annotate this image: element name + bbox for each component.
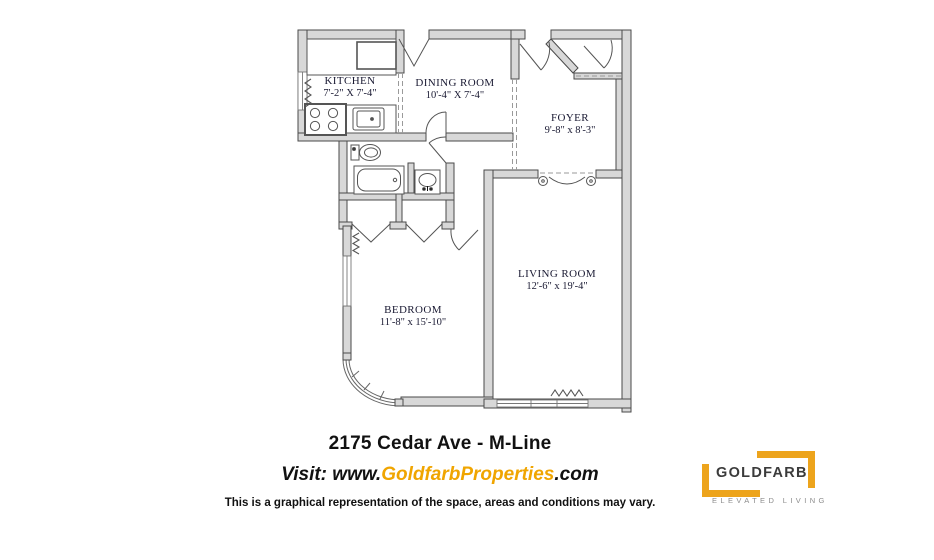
floorplan-flyer: KITCHEN 7'-2" X 7'-4" DINING ROOM 10'-4"…	[0, 0, 934, 560]
kitchen-sink-icon	[353, 108, 384, 130]
visit-brand: GoldfarbProperties	[381, 464, 554, 485]
visit-prefix: Visit: www.	[281, 464, 381, 485]
door-swing	[459, 230, 478, 250]
stove-icon	[305, 104, 346, 135]
french-door-scrolls	[539, 177, 596, 186]
goldfarb-logo: GOLDFARB ELEVATED LIVING	[695, 443, 845, 513]
curved-bay-window	[343, 359, 401, 406]
kitchen-cabinet	[357, 42, 396, 69]
french-door-scroll	[539, 177, 548, 186]
vanity-sink-icon	[415, 170, 440, 194]
door-swing	[520, 44, 541, 70]
dashed-openings	[399, 73, 623, 173]
logo-wordmark: GOLDFARB	[716, 465, 808, 481]
radiator-icon	[551, 390, 583, 396]
bathtub-icon	[354, 166, 404, 194]
disclaimer-text: This is a graphical representation of th…	[140, 497, 740, 509]
bathroom-fixtures	[351, 145, 440, 195]
logo-bracket-top	[757, 451, 815, 458]
visit-url: Visit: www.GoldfarbProperties.com	[140, 464, 740, 486]
page-title: 2175 Cedar Ave - M-Line	[140, 433, 740, 455]
logo-tagline: ELEVATED LIVING	[712, 496, 828, 505]
closet-door	[406, 224, 442, 242]
logo-bracket-top	[808, 451, 815, 488]
closet-door	[584, 46, 604, 68]
toilet-icon	[351, 145, 381, 161]
radiator-icon	[353, 233, 359, 254]
door-swing	[429, 143, 446, 163]
kitchen-fixtures	[305, 39, 396, 135]
footer-text-block: 2175 Cedar Ave - M-Line Visit: www.Goldf…	[140, 433, 740, 509]
french-door-scroll	[587, 177, 596, 186]
visit-suffix: .com	[554, 464, 598, 485]
